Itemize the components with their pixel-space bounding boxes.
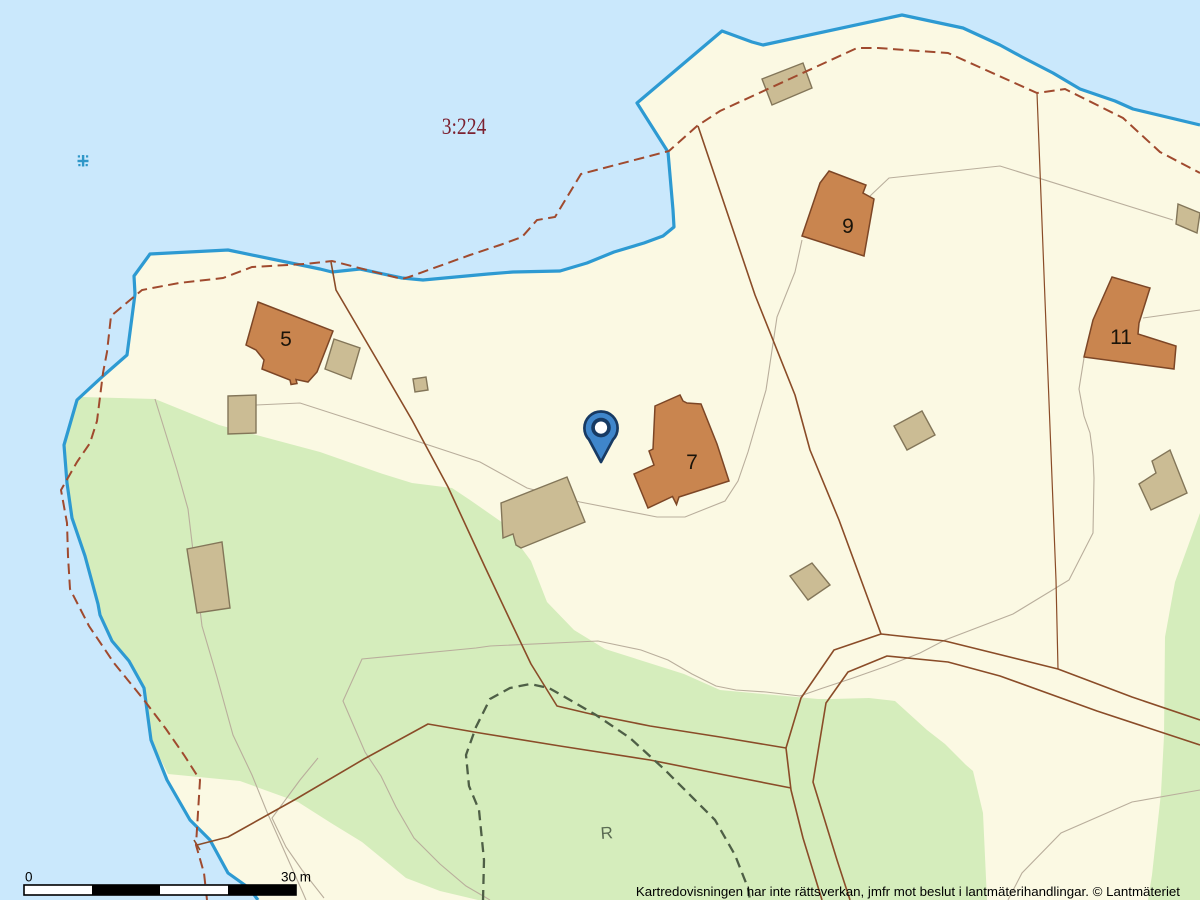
svg-text:7: 7	[686, 451, 698, 474]
svg-text:0: 0	[25, 870, 33, 885]
svg-text:3:224: 3:224	[442, 114, 487, 140]
svg-text:5: 5	[280, 328, 292, 351]
svg-text:11: 11	[1110, 326, 1132, 349]
svg-text:Kartredovisningen har inte rät: Kartredovisningen har inte rättsverkan, …	[636, 884, 1180, 899]
svg-text:9: 9	[842, 215, 854, 238]
svg-text:R: R	[600, 823, 614, 843]
svg-text:30 m: 30 m	[281, 870, 311, 885]
